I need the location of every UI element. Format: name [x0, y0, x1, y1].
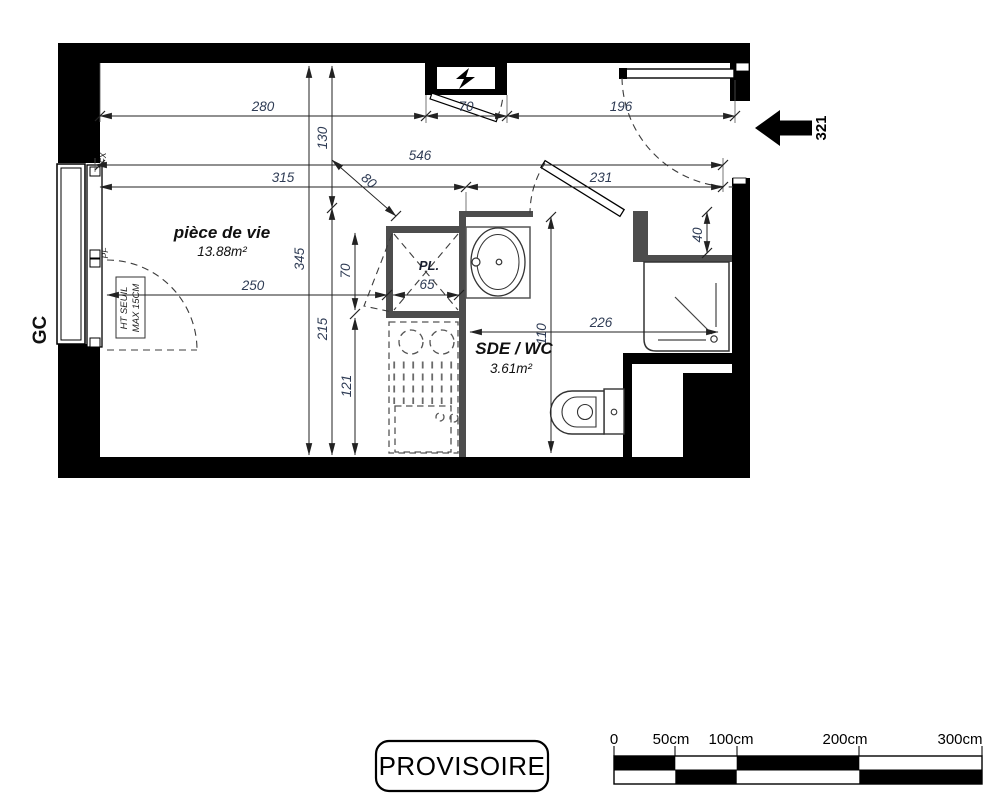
window-mullion — [90, 338, 100, 347]
stamp-text: PROVISOIRE — [379, 751, 546, 781]
dim-280: 280 — [251, 99, 275, 114]
drain-icon — [496, 259, 502, 265]
entrance-door — [619, 68, 734, 187]
dim-65: 65 — [419, 277, 435, 292]
dim-231: 231 — [589, 170, 613, 185]
shower-drain-icon — [711, 336, 717, 342]
toilet-tank — [604, 389, 624, 434]
closet-label: PL. — [419, 258, 439, 273]
closet: PL. — [364, 234, 458, 312]
floor-plan-page: FX PF HT SEUIL MAX 15CM GC PL. — [0, 0, 994, 800]
living-room-label: pièce de vie — [173, 223, 270, 242]
dim-315: 315 — [272, 170, 295, 185]
burner-icon — [399, 330, 423, 354]
floor-plan-drawing: FX PF HT SEUIL MAX 15CM GC PL. — [0, 0, 994, 800]
entrance-door-edge-cap — [619, 68, 627, 79]
threshold-note-line2: MAX 15CM — [131, 284, 142, 333]
bathroom-door-leaf — [541, 161, 624, 217]
entrance-door-swing-arc — [622, 78, 733, 187]
dim-70-top: 70 — [458, 99, 474, 114]
dim-345: 345 — [292, 247, 307, 270]
scale-label-300: 300cm — [937, 731, 982, 748]
bath-door-stub-wall — [633, 211, 648, 262]
dim-215: 215 — [315, 317, 330, 341]
bathroom-door — [530, 161, 624, 217]
threshold-note-line1: HT SEUIL — [119, 287, 130, 330]
dim-70-closet: 70 — [338, 263, 353, 279]
knob-icon — [436, 413, 444, 421]
direction-arrow-icon — [755, 110, 812, 146]
unit-number: 321 — [813, 115, 830, 140]
sink-top-wall — [459, 211, 533, 217]
scale-segment — [675, 770, 736, 784]
scale-bar: 0 50cm 100cm 200cm 300cm — [610, 731, 983, 784]
scale-segment — [859, 770, 982, 784]
living-room-area: 13.88m² — [197, 244, 247, 259]
closet-wall-top — [386, 226, 466, 233]
wall-bottom — [58, 457, 750, 478]
faucet-icon — [472, 258, 480, 266]
dim-80-diagonal: 80 — [358, 170, 380, 191]
dim-226: 226 — [589, 315, 613, 330]
door-jamb-notch-top — [736, 63, 749, 71]
dim-121: 121 — [339, 375, 354, 398]
shower-top-wall — [644, 255, 732, 262]
threshold-note: HT SEUIL MAX 15CM — [116, 277, 145, 338]
window-label-pf: PF — [100, 247, 110, 259]
wall-right — [732, 178, 750, 458]
dim-130: 130 — [315, 126, 330, 149]
bathroom-area: 3.61m² — [490, 361, 533, 376]
provisoire-stamp: PROVISOIRE — [376, 741, 548, 791]
kitchenette-sink-unit — [395, 406, 451, 452]
scale-segment — [737, 756, 860, 770]
duct-block — [683, 373, 732, 457]
wall-left-bottom — [58, 344, 100, 457]
scale-label-0: 0 — [610, 731, 618, 748]
bathroom-door-swing-arc — [530, 163, 545, 213]
window-mullion — [90, 250, 100, 258]
electrical-panel-door-arc — [497, 96, 503, 118]
bathroom-label: SDE / WC — [475, 339, 553, 358]
divider-wall — [459, 211, 466, 457]
dim-40: 40 — [690, 227, 705, 243]
scale-segment — [614, 756, 675, 770]
toilet — [551, 389, 625, 434]
entrance-direction: 321 — [755, 110, 830, 146]
window-mullion — [90, 259, 100, 267]
wall-left-top — [58, 43, 100, 163]
scale-label-50: 50cm — [653, 731, 690, 748]
dim-250: 250 — [241, 278, 265, 293]
burner-icon — [430, 330, 454, 354]
kitchenette — [389, 322, 458, 453]
dim-546: 546 — [409, 148, 432, 163]
wall-below-shower — [623, 353, 732, 364]
door-jamb-notch-bottom — [733, 178, 746, 184]
dim-196: 196 — [610, 99, 633, 114]
closet-wall-bottom — [386, 311, 466, 318]
kitchenette-hatch-area — [392, 357, 456, 404]
scale-label-200: 200cm — [822, 731, 867, 748]
sink-vanity — [466, 227, 530, 298]
shower — [644, 262, 729, 351]
gc-label: GC — [30, 315, 51, 344]
wall-top — [100, 43, 750, 63]
entrance-door-leaf — [622, 69, 734, 78]
scale-label-100: 100cm — [708, 731, 753, 748]
